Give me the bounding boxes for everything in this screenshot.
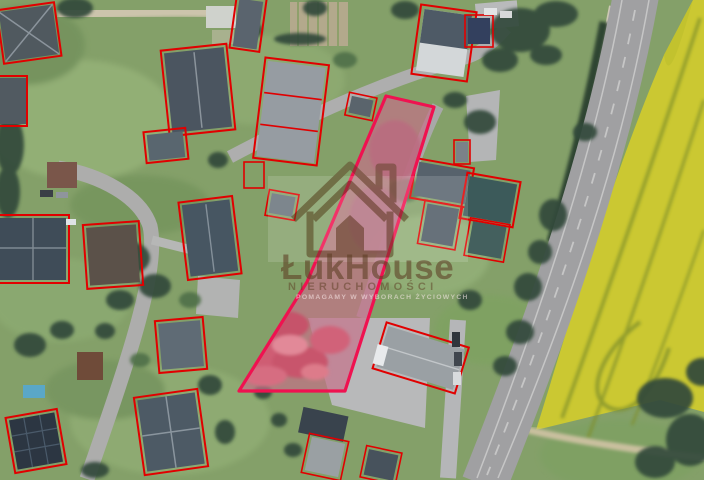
watermark-tagline: POMAGAMY W WYBORACH ŻYCIOWYCH [296,294,469,301]
watermark-subtitle: NIERUCHOMOŚCI [288,281,437,293]
aerial-scene [0,0,704,480]
aerial-property-photo: ŁukHouse NIERUCHOMOŚCI POMAGAMY W WYBORA… [0,0,704,480]
